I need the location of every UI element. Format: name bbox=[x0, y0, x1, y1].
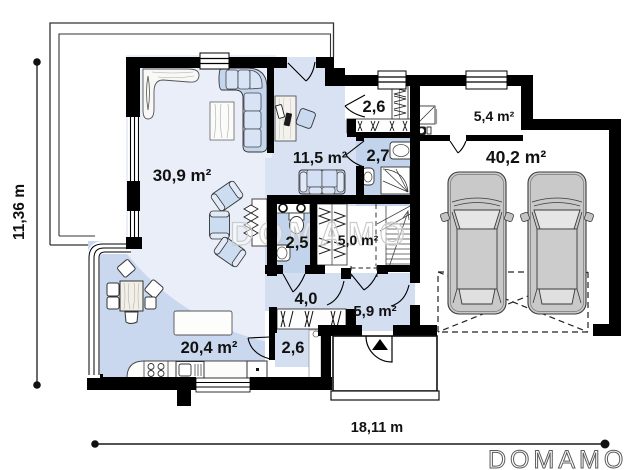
svg-text:5,4 m²: 5,4 m² bbox=[474, 108, 515, 124]
svg-text:2,5: 2,5 bbox=[286, 234, 309, 252]
svg-text:5,0 m²: 5,0 m² bbox=[338, 232, 379, 248]
svg-text:30,9 m²: 30,9 m² bbox=[153, 166, 212, 185]
svg-text:2,6: 2,6 bbox=[282, 339, 305, 357]
svg-text:11,5 m²: 11,5 m² bbox=[293, 150, 347, 167]
svg-text:2,6: 2,6 bbox=[363, 98, 386, 116]
svg-text:4,0: 4,0 bbox=[295, 290, 318, 308]
svg-text:DOMAMO: DOMAMO bbox=[488, 446, 627, 470]
svg-text:DOMAMO: DOMAMO bbox=[230, 216, 409, 252]
svg-text:18,11 m: 18,11 m bbox=[351, 420, 403, 436]
svg-text:5,9 m²: 5,9 m² bbox=[353, 303, 396, 320]
svg-text:20,4 m²: 20,4 m² bbox=[181, 339, 238, 357]
svg-text:40,2 m²: 40,2 m² bbox=[486, 147, 546, 167]
svg-text:11,36 m: 11,36 m bbox=[11, 184, 28, 240]
svg-text:2,7: 2,7 bbox=[367, 147, 390, 165]
